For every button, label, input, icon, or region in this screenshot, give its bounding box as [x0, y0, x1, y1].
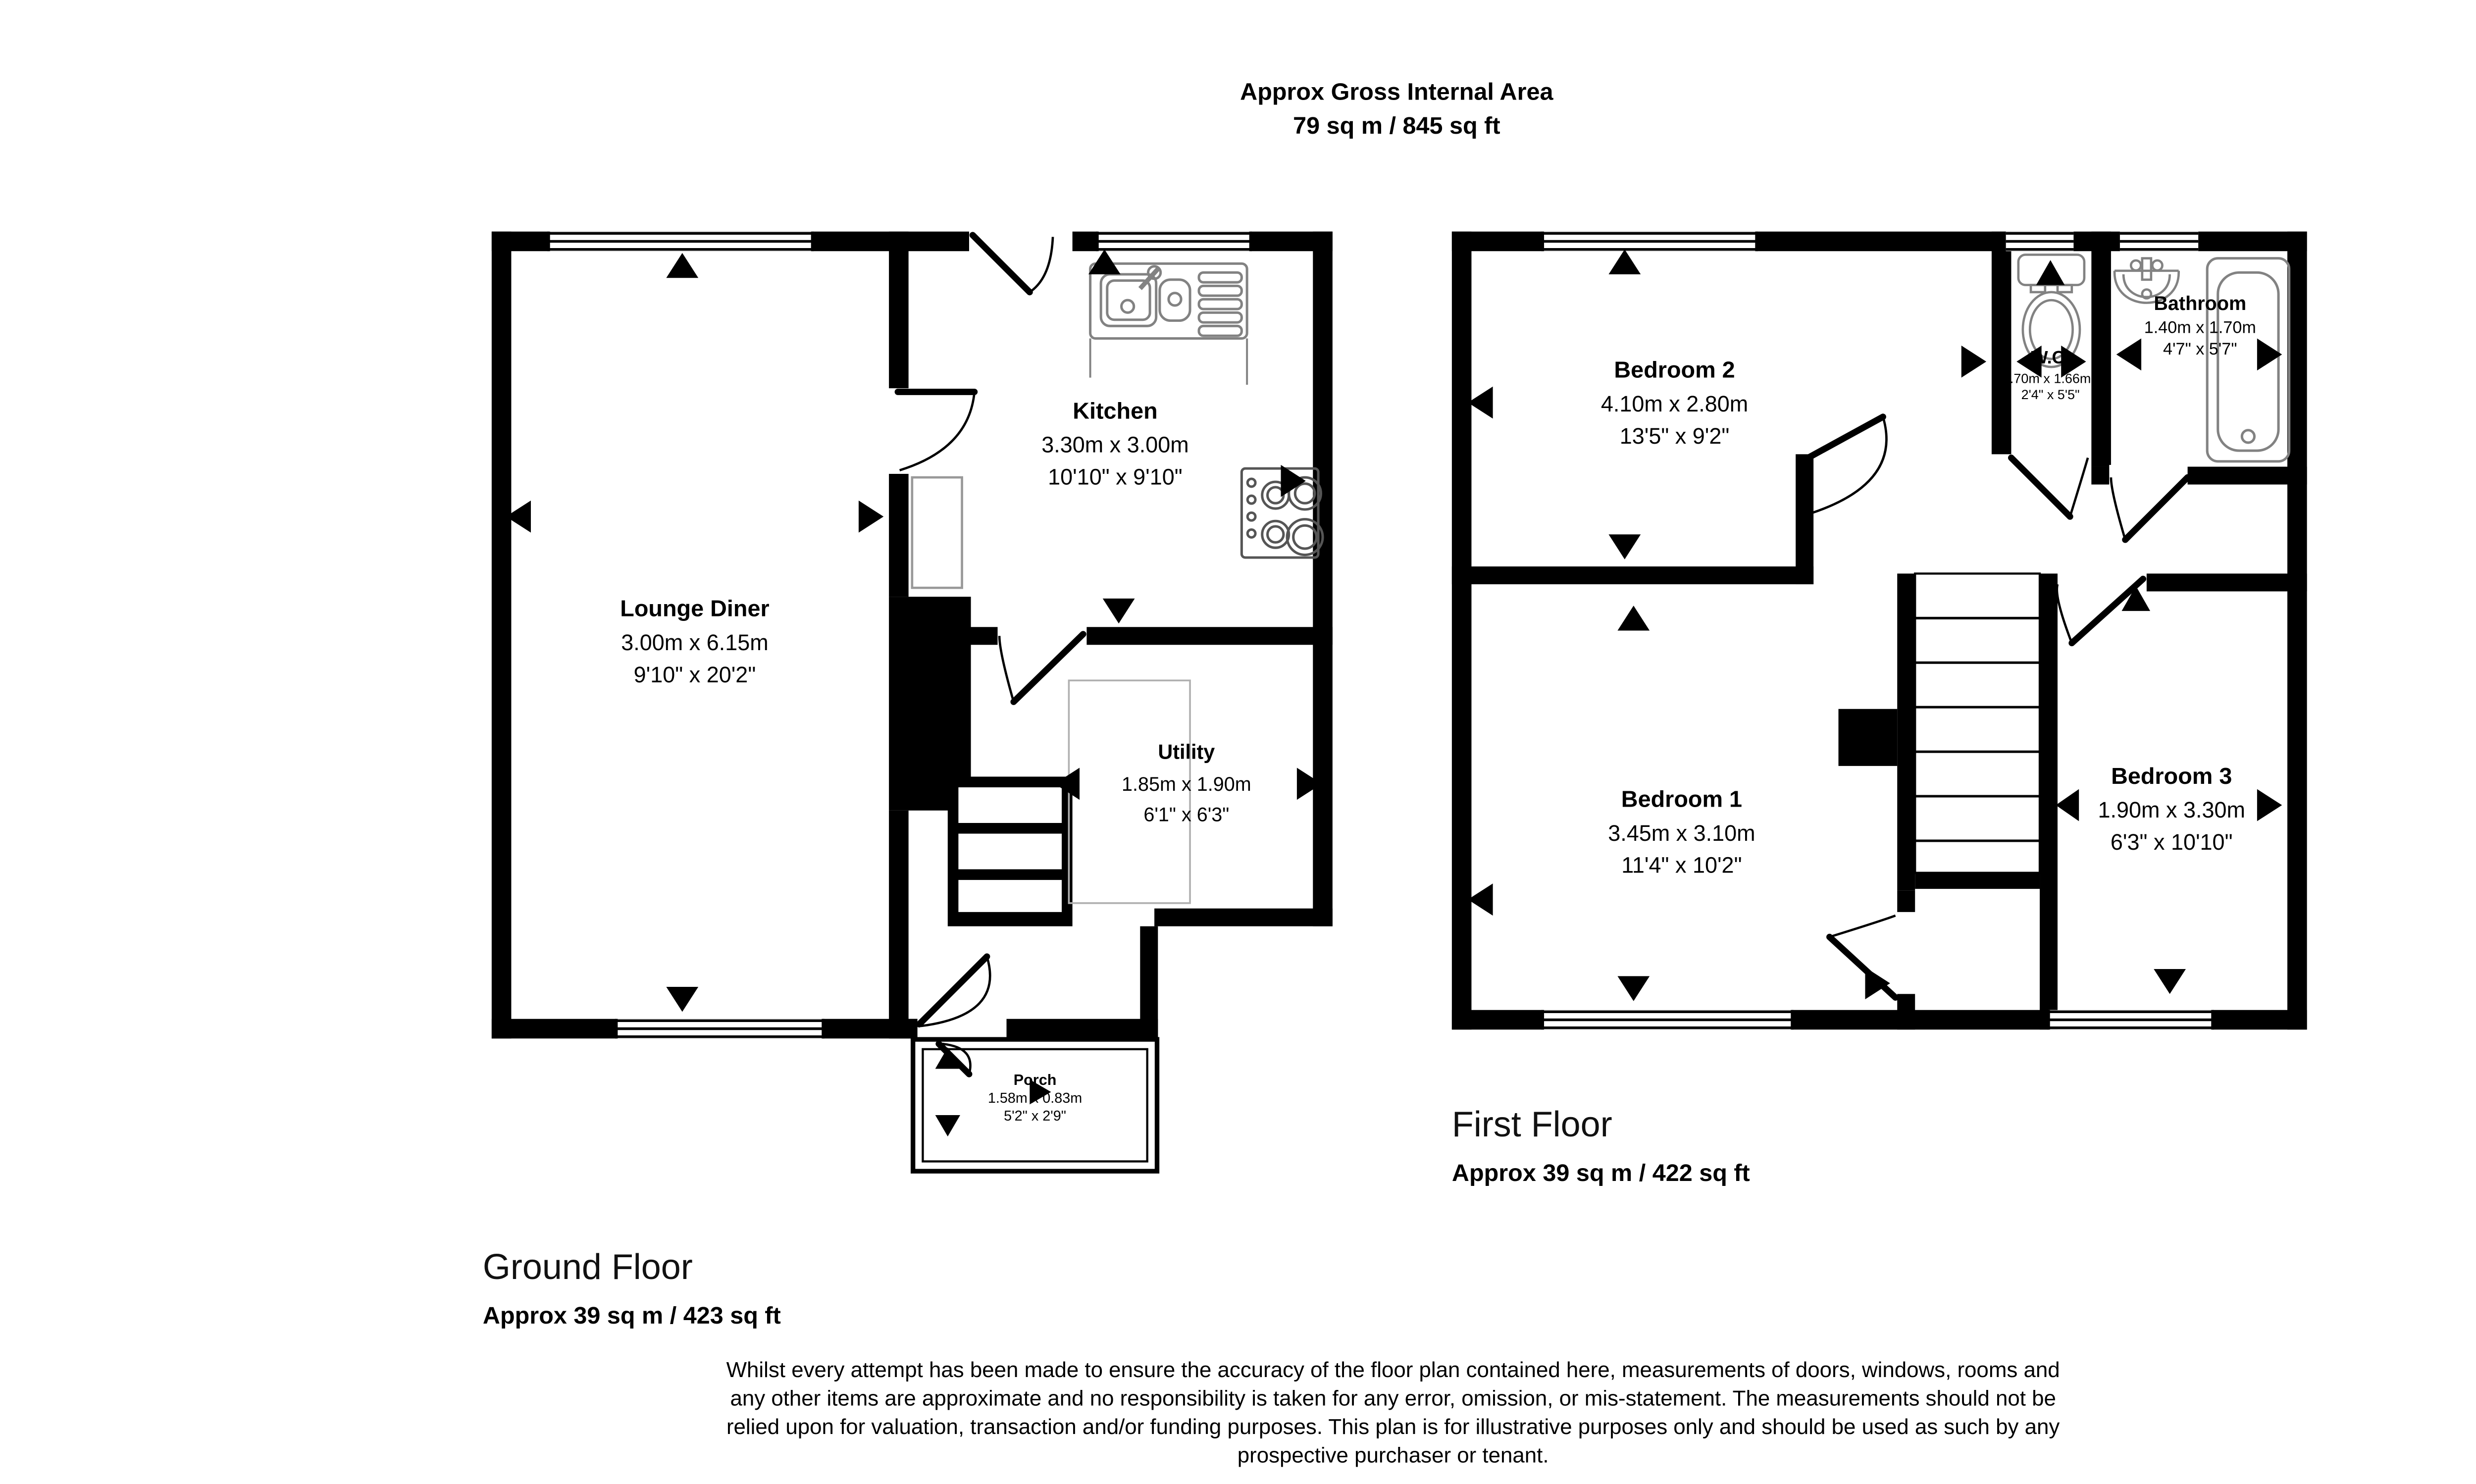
first-dimension-arrows: [1468, 250, 2282, 1001]
label-bedroom3: Bedroom 3 1.90m x 3.30m 6'3" x 10'10": [2098, 759, 2245, 860]
page-title: Approx Gross Internal Area 79 sq m / 845…: [1023, 75, 1771, 143]
label-bathroom: Bathroom 1.40m x 1.70m 4'7" x 5'7": [2144, 294, 2256, 361]
label-kitchen: Kitchen 3.30m x 3.00m 10'10" x 9'10": [1041, 394, 1188, 495]
kitchen-sink: [1090, 263, 1247, 338]
room-name: Kitchen: [1041, 394, 1188, 428]
room-metric: 1.58m x 0.83m: [988, 1090, 1082, 1109]
title-line1: Approx Gross Internal Area: [1023, 75, 1771, 108]
disclaimer-line: relied upon for valuation, transaction a…: [591, 1413, 2195, 1441]
floorplan-page: Approx Gross Internal Area 79 sq m / 845…: [0, 0, 2476, 1484]
room-name: Bedroom 2: [1601, 353, 1748, 387]
window-lounge-bottom: [617, 1019, 823, 1039]
ground-floor-area: Approx 39 sq m / 423 sq ft: [483, 1302, 781, 1329]
room-metric: 1.90m x 3.30m: [2098, 794, 2245, 827]
first-stairs: [1915, 573, 2040, 872]
label-lounge-diner: Lounge Diner 3.00m x 6.15m 9'10" x 20'2": [620, 591, 769, 693]
room-imperial: 4'7" x 5'7": [2144, 340, 2256, 361]
room-imperial: 5'2" x 2'9": [988, 1109, 1082, 1127]
window-bathroom-top: [2120, 232, 2198, 252]
first-floor-title: First Floor: [1452, 1106, 1612, 1147]
ground-walls: [492, 232, 1333, 1039]
ground-floor-plan: [481, 221, 1354, 1192]
label-porch: Porch 1.58m x 0.83m 5'2" x 2'9": [988, 1071, 1082, 1127]
ground-floor-title: Ground Floor: [483, 1249, 693, 1290]
room-imperial: 6'1" x 6'3": [1122, 801, 1251, 831]
window-bedroom2-top: [1543, 232, 1756, 252]
disclaimer: Whilst every attempt has been made to en…: [591, 1356, 2195, 1470]
room-metric: 3.30m x 3.00m: [1041, 428, 1188, 461]
wc-door: [2011, 458, 2088, 517]
window-bedroom1-bottom: [1543, 1010, 1792, 1030]
window-bedroom3-bottom: [2049, 1010, 2213, 1030]
label-bedroom2: Bedroom 2 4.10m x 2.80m 13'5" x 9'2": [1601, 353, 1748, 454]
room-imperial: 2'4" x 5'5": [2010, 387, 2091, 403]
room-metric: 1.40m x 1.70m: [2144, 318, 2256, 340]
room-imperial: 6'3" x 10'10": [2098, 827, 2245, 860]
kitchen-counter: [1090, 339, 1247, 385]
room-metric: .70m x 1.66m: [2010, 370, 2091, 386]
first-floor-area: Approx 39 sq m / 422 sq ft: [1452, 1160, 1750, 1186]
room-name: Utility: [1122, 739, 1251, 771]
window-lounge-top: [549, 232, 812, 252]
title-line2: 79 sq m / 845 sq ft: [1023, 108, 1771, 142]
label-wc: W.C. .70m x 1.66m 2'4" x 5'5": [2010, 349, 2091, 403]
room-name: Lounge Diner: [620, 591, 769, 626]
window-kitchen-top: [1097, 232, 1250, 252]
room-metric: 3.45m x 3.10m: [1608, 817, 1755, 850]
room-name: W.C.: [2010, 349, 2091, 370]
room-imperial: 13'5" x 9'2": [1601, 421, 1748, 454]
label-bedroom1: Bedroom 1 3.45m x 3.10m 11'4" x 10'2": [1608, 782, 1755, 883]
window-wc-top: [2006, 232, 2074, 252]
label-utility: Utility 1.85m x 1.90m 6'1" x 6'3": [1122, 739, 1251, 832]
disclaimer-line: prospective purchaser or tenant.: [591, 1441, 2195, 1470]
bedroom2-door: [1808, 417, 1886, 513]
disclaimer-line: Whilst every attempt has been made to en…: [591, 1356, 2195, 1384]
room-name: Bathroom: [2144, 294, 2256, 318]
room-metric: 3.00m x 6.15m: [620, 626, 769, 659]
bathroom-door: [2111, 477, 2188, 540]
front-door: [919, 957, 990, 1026]
room-name: Porch: [988, 1071, 1082, 1090]
room-imperial: 10'10" x 9'10": [1041, 462, 1188, 495]
room-imperial: 9'10" x 20'2": [620, 660, 769, 693]
ground-stairs: [948, 776, 1073, 926]
kitchen-unit: [912, 477, 962, 588]
room-metric: 1.85m x 1.90m: [1122, 771, 1251, 801]
room-metric: 4.10m x 2.80m: [1601, 387, 1748, 420]
room-imperial: 11'4" x 10'2": [1608, 850, 1755, 883]
disclaimer-line: any other items are approximate and no r…: [591, 1384, 2195, 1413]
room-name: Bedroom 1: [1608, 782, 1755, 817]
room-name: Bedroom 3: [2098, 759, 2245, 793]
first-door-openings: [2109, 465, 2187, 486]
